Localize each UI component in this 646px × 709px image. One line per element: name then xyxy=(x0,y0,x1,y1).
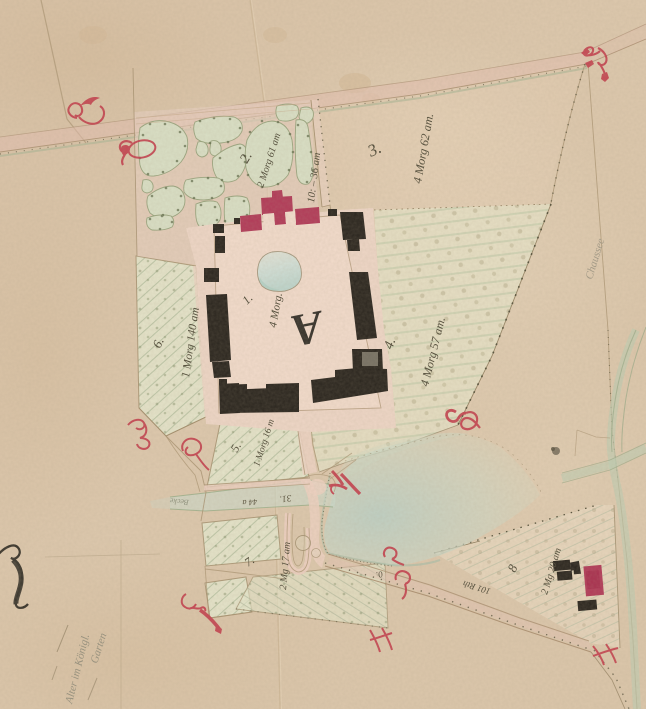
svg-text:44 a: 44 a xyxy=(242,497,258,508)
svg-text:Becke: Becke xyxy=(169,496,189,507)
svg-text:31.: 31. xyxy=(279,492,293,504)
